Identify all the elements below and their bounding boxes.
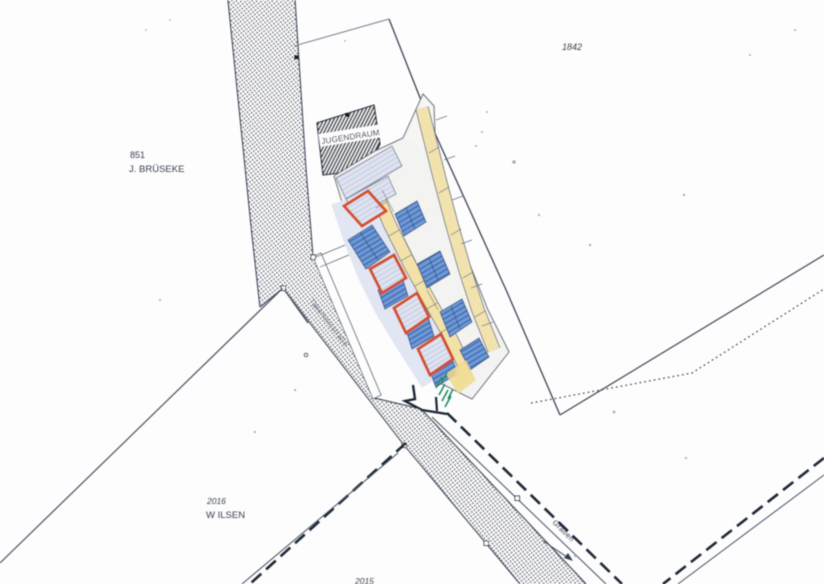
svg-text:2016: 2016 bbox=[206, 496, 226, 506]
svg-text:2015: 2015 bbox=[354, 576, 374, 584]
svg-text:851: 851 bbox=[130, 150, 145, 160]
svg-text:W ILSEN: W ILSEN bbox=[206, 510, 245, 521]
svg-text:Graben: Graben bbox=[551, 518, 577, 544]
svg-text:J. BRÜSEKE: J. BRÜSEKE bbox=[129, 164, 184, 175]
svg-text:1842: 1842 bbox=[562, 42, 582, 52]
